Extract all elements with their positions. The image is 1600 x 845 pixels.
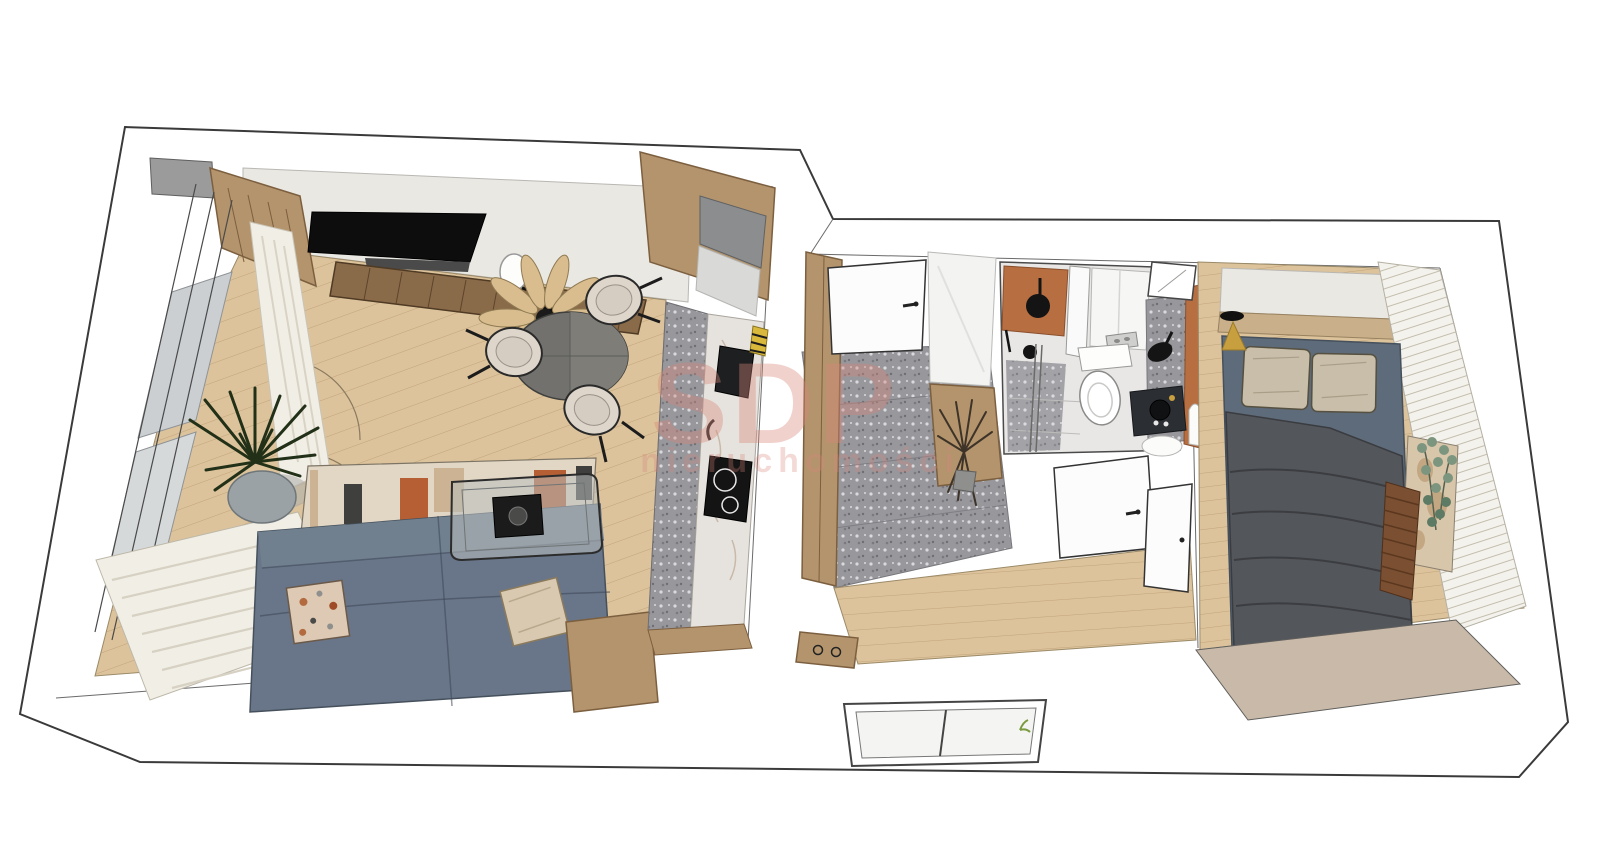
coffee-table-tablet [493, 494, 544, 537]
shoe-bench [796, 632, 858, 668]
bathroom [1000, 262, 1204, 456]
bedroom-door [1144, 484, 1192, 592]
rain-shower-head [1026, 294, 1050, 318]
shower-glass-panel [1066, 266, 1090, 358]
lounge [250, 458, 658, 712]
floorplan-render-page: SDP nieruchomości [0, 0, 1600, 845]
bedroom-door-handle [1180, 538, 1185, 543]
apartment-3d-floorplan: SDP nieruchomości [0, 0, 1600, 845]
lamp-disc [1220, 311, 1244, 321]
bed-pillow [1311, 353, 1376, 412]
bed-pillow [1241, 346, 1310, 409]
sofa-pillow-patterned [286, 580, 349, 643]
hall-exterior-window [844, 700, 1046, 766]
shower-terrazzo-floor [1006, 360, 1066, 452]
bathroom-window [1148, 262, 1196, 300]
bathroom-door [1054, 456, 1154, 558]
side-table-wood [566, 612, 658, 712]
white-basin-oval [1142, 436, 1182, 456]
vanity-gold-tap [1169, 395, 1175, 401]
watermark-subtitle: nieruchomości [640, 442, 960, 480]
plant-pot [228, 471, 296, 523]
vanity-basin [1150, 400, 1170, 420]
balcony-slab [150, 158, 214, 198]
toilet-tank [1078, 344, 1132, 371]
